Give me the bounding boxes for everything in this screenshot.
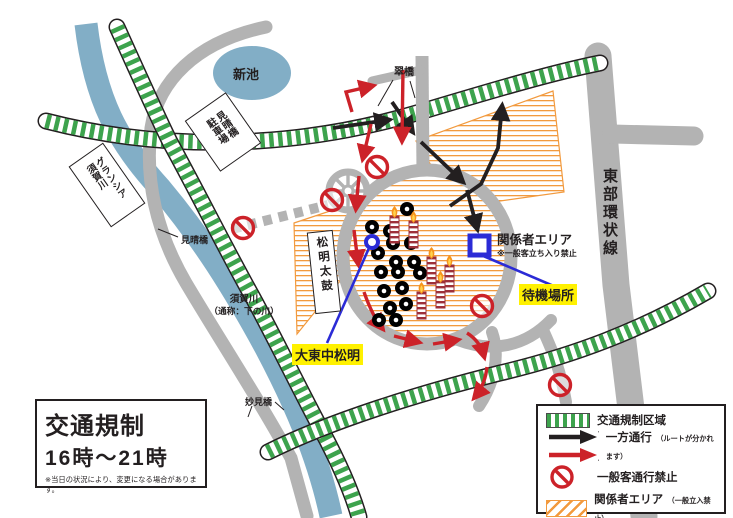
bridge-left-label: 見晴橋 (181, 233, 208, 246)
green-hatch-swatch-icon (546, 413, 590, 428)
pond-label: 新池 (233, 64, 259, 83)
taiko-label: 松明太鼓 (314, 236, 335, 309)
torch-spot-marker (374, 265, 388, 279)
parking-label: 見晴橋駐車場 (203, 110, 244, 154)
torch-spot-marker (391, 265, 405, 279)
legend-label: 関係者エリア (594, 494, 663, 506)
torch-spot-marker (377, 284, 391, 298)
no-entry-symbol (322, 190, 343, 211)
one-way-arrows-icon (546, 428, 599, 464)
legend-row-noentry: 一般客通行禁止 (546, 464, 716, 490)
legend-label: 一方通行 (606, 432, 652, 444)
daito-torch-label: 大東中松明 (292, 344, 363, 365)
bridge-top-label: 翠橋 (394, 63, 414, 78)
no-entry-icon (546, 464, 590, 490)
staff-area-caption: 関係者エリア ※一般客立ち入り禁止 (497, 229, 577, 259)
staff-area-title: 関係者エリア (497, 229, 577, 248)
legend-row-oneway: 一方通行 （ルートが分かれます） (546, 428, 716, 464)
torch-spot-marker (413, 266, 427, 280)
river-label-line2: （通称：下の川） (198, 306, 290, 317)
orange-hatch-swatch-icon (546, 500, 587, 517)
river-label-line1: 須賀川 (198, 294, 290, 306)
river-label: 須賀川 （通称：下の川） (198, 294, 290, 317)
no-entry-symbol (550, 375, 571, 396)
torch-spot-marker (365, 220, 379, 234)
regulation-title: 交通規制 (45, 406, 197, 441)
torch-spot-marker (372, 313, 386, 327)
legend-label: 交通規制区域 (597, 412, 666, 428)
regulation-time-box: 交通規制 16時～21時 ※当日の状況により、変更になる場合があります。 (35, 399, 207, 488)
no-entry-symbol (367, 157, 388, 178)
waiting-area-label: 待機場所 (519, 284, 577, 305)
torch-spot-marker (383, 301, 397, 315)
torch-spot-marker (399, 297, 413, 311)
traffic-regulation-map: 新池 翠橋 見晴橋駐車場 グランシア須賀川 見晴橋 須賀川 （通称：下の川） 松… (0, 0, 733, 518)
torch-spot-marker (395, 281, 409, 295)
torch-spot-marker (389, 313, 403, 327)
legend-label: 一般客通行禁止 (597, 469, 678, 485)
staff-area-note: ※一般客立ち入り禁止 (497, 248, 577, 259)
legend-box: 交通規制区域 一方通行 （ルートが分かれます） 一般客通行禁止 関係者エリア （… (536, 404, 726, 514)
regulation-note: ※当日の状況により、変更になる場合があります。 (45, 475, 197, 495)
legend-row-regulation: 交通規制区域 (546, 412, 716, 428)
bridge-bottom-label: 妙見橋 (245, 395, 272, 408)
regulation-time: 16時～21時 (45, 442, 197, 472)
ring-road-label: 東部環状線 (599, 168, 620, 258)
no-entry-symbol (233, 218, 254, 239)
legend-row-staffarea: 関係者エリア （一般立入禁止） (546, 490, 716, 518)
no-entry-symbol (472, 296, 493, 317)
